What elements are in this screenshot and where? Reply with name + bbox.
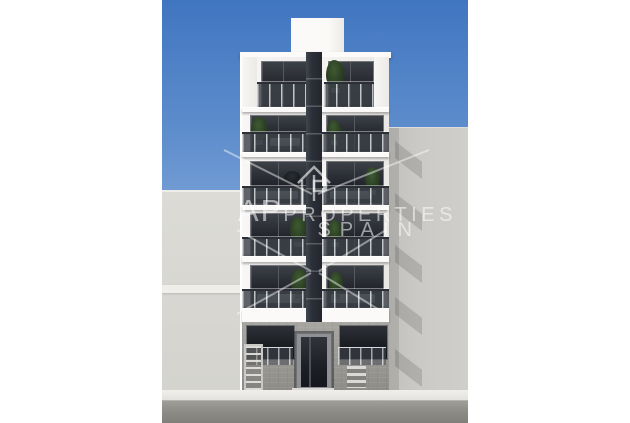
facade-pillar [374, 57, 389, 107]
property-render-photo: APPROPERTIES SPAIN [162, 0, 468, 423]
balcony-glass-railing [257, 82, 309, 109]
sidewalk [162, 390, 468, 400]
balcony-glass-railing [322, 186, 389, 207]
balcony-glass-railing [324, 82, 374, 109]
street [162, 400, 468, 423]
balcony-glass-railing [322, 132, 389, 154]
hanging-chair [284, 171, 300, 184]
entrance-door [296, 333, 332, 392]
balcony-glass-railing [242, 132, 309, 154]
balcony-glass-railing [242, 289, 309, 310]
balcony-glass-railing [322, 237, 389, 258]
balcony-glass-railing [322, 289, 389, 310]
balcony-glass-railing [242, 186, 309, 207]
entrance-side-steps [347, 366, 366, 388]
page-canvas: APPROPERTIES SPAIN [0, 0, 630, 423]
ground-terrace-railing [338, 347, 386, 365]
balcony-glass-railing [242, 237, 309, 258]
facade-pillar [242, 57, 257, 107]
entrance-door-glass [301, 337, 327, 387]
left-terrace-gate [244, 344, 263, 392]
